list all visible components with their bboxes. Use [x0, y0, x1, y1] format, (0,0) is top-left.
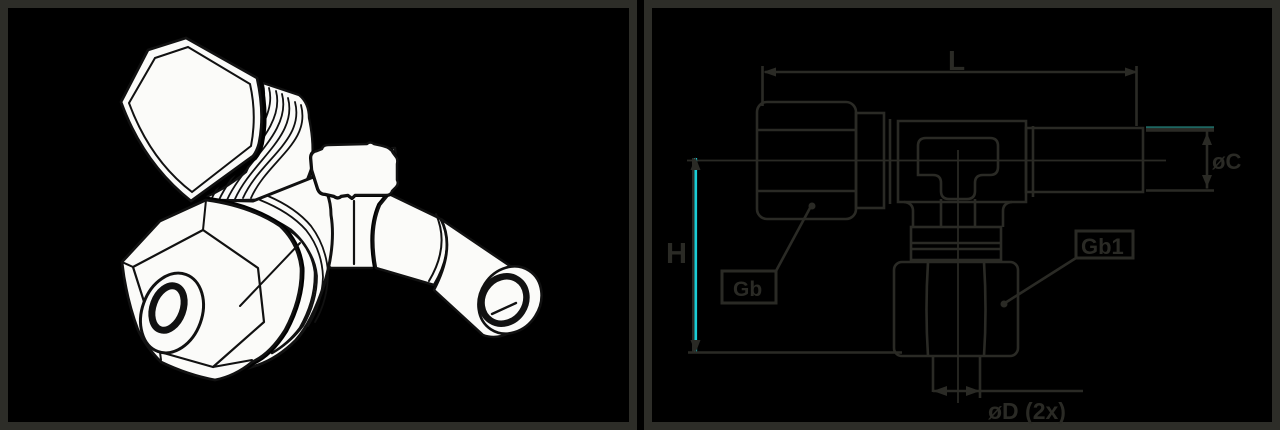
svg-text:øD (2x): øD (2x) [988, 398, 1066, 424]
svg-text:øC: øC [1212, 149, 1241, 174]
svg-text:L: L [948, 45, 965, 76]
svg-text:H: H [666, 238, 687, 270]
svg-text:Gb: Gb [733, 278, 762, 301]
svg-text:Gb1: Gb1 [1081, 234, 1124, 259]
